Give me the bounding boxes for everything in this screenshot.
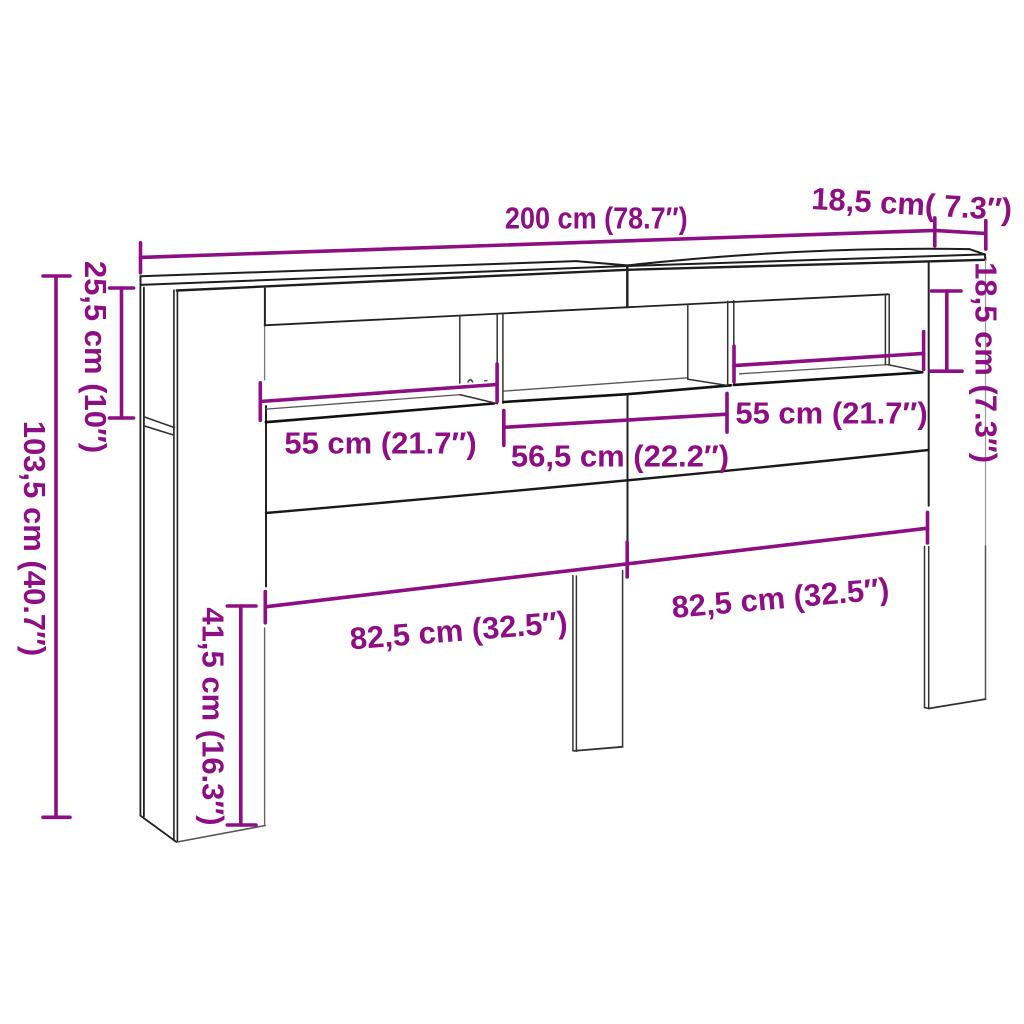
svg-text:25,5 cm (10″): 25,5 cm (10″) [78,261,113,453]
svg-text:41,5 cm (16.3″): 41,5 cm (16.3″) [196,607,231,825]
svg-text:103,5 cm (40.7″): 103,5 cm (40.7″) [17,421,52,656]
svg-text:56,5 cm (22.2″): 56,5 cm (22.2″) [511,439,729,474]
svg-text:200 cm (78.7″): 200 cm (78.7″) [505,202,688,236]
svg-text:18,5 cm (7.3″): 18,5 cm (7.3″) [969,262,1004,463]
svg-text:55 cm (21.7″): 55 cm (21.7″) [284,426,476,461]
svg-text:55 cm (21.7″): 55 cm (21.7″) [735,396,927,431]
